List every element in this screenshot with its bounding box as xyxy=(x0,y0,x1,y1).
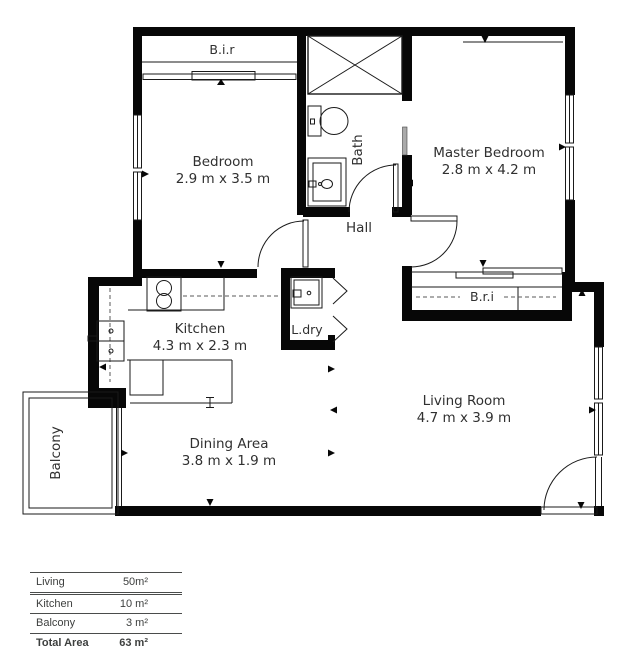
living-room-exterior-door xyxy=(541,457,602,514)
vanity-sink-icon xyxy=(308,158,346,206)
area-row-label: Total Area xyxy=(30,637,90,649)
table-row-total: Total Area 63 m² xyxy=(30,634,182,650)
area-row-value: 3 m² xyxy=(90,617,148,629)
master-bedroom-door xyxy=(411,216,457,267)
area-summary-table: Living 50m² Kitchen 10 m² Balcony 3 m² T… xyxy=(30,572,182,650)
area-row-label: Kitchen xyxy=(30,598,90,610)
table-row: Living 50m² xyxy=(30,573,182,595)
bir-closet xyxy=(142,62,297,80)
dining-area-dims: 3.8 m x 1.9 m xyxy=(182,453,276,469)
balcony-label: Balcony xyxy=(48,426,64,480)
living-room-label: Living Room xyxy=(423,393,506,409)
floor-plan-page: B.i.r Bedroom 2.9 m x 3.5 m Bath Hall Ma… xyxy=(0,0,640,650)
area-row-value: 50m² xyxy=(90,576,148,588)
kitchen-label: Kitchen xyxy=(175,321,226,337)
area-row-label: Balcony xyxy=(30,617,90,629)
bath-master-sliding-door xyxy=(403,127,408,155)
living-room-dims: 4.7 m x 3.9 m xyxy=(417,410,511,426)
dining-area-label: Dining Area xyxy=(190,436,269,452)
table-row: Kitchen 10 m² xyxy=(30,595,182,615)
balcony-outline xyxy=(23,392,118,514)
bri-label: B.r.i xyxy=(470,289,494,304)
toilet-icon xyxy=(308,106,348,136)
bedroom-dims: 2.9 m x 3.5 m xyxy=(176,171,270,187)
living-room-window xyxy=(595,347,603,455)
bir-label: B.i.r xyxy=(209,42,235,57)
hall-label: Hall xyxy=(346,220,372,236)
kitchen-dims: 4.3 m x 2.3 m xyxy=(153,338,247,354)
bath-door xyxy=(349,164,398,212)
master-bedroom-window xyxy=(566,95,574,200)
washing-machine-icon xyxy=(291,277,322,308)
master-bedroom-dims: 2.8 m x 4.2 m xyxy=(442,162,536,178)
bath-label: Bath xyxy=(350,134,366,165)
table-row: Balcony 3 m² xyxy=(30,614,182,634)
area-row-value: 63 m² xyxy=(90,637,148,649)
balcony-sliding-door xyxy=(117,408,122,506)
bedroom-door xyxy=(258,220,308,267)
bedroom-window xyxy=(134,115,142,220)
ldry-label: L.dry xyxy=(291,322,323,337)
shower-box xyxy=(308,36,402,94)
ldry-bifold-doors xyxy=(333,278,347,342)
area-row-value: 10 m² xyxy=(90,598,148,610)
bedroom-label: Bedroom xyxy=(192,154,253,170)
master-robe-sliding-door xyxy=(411,268,562,278)
walls xyxy=(88,27,604,516)
master-bedroom-label: Master Bedroom xyxy=(433,145,544,161)
area-row-label: Living xyxy=(30,576,90,588)
floor-plan-drawing: B.i.r Bedroom 2.9 m x 3.5 m Bath Hall Ma… xyxy=(0,0,640,650)
kitchen-zone-lines xyxy=(127,360,232,403)
